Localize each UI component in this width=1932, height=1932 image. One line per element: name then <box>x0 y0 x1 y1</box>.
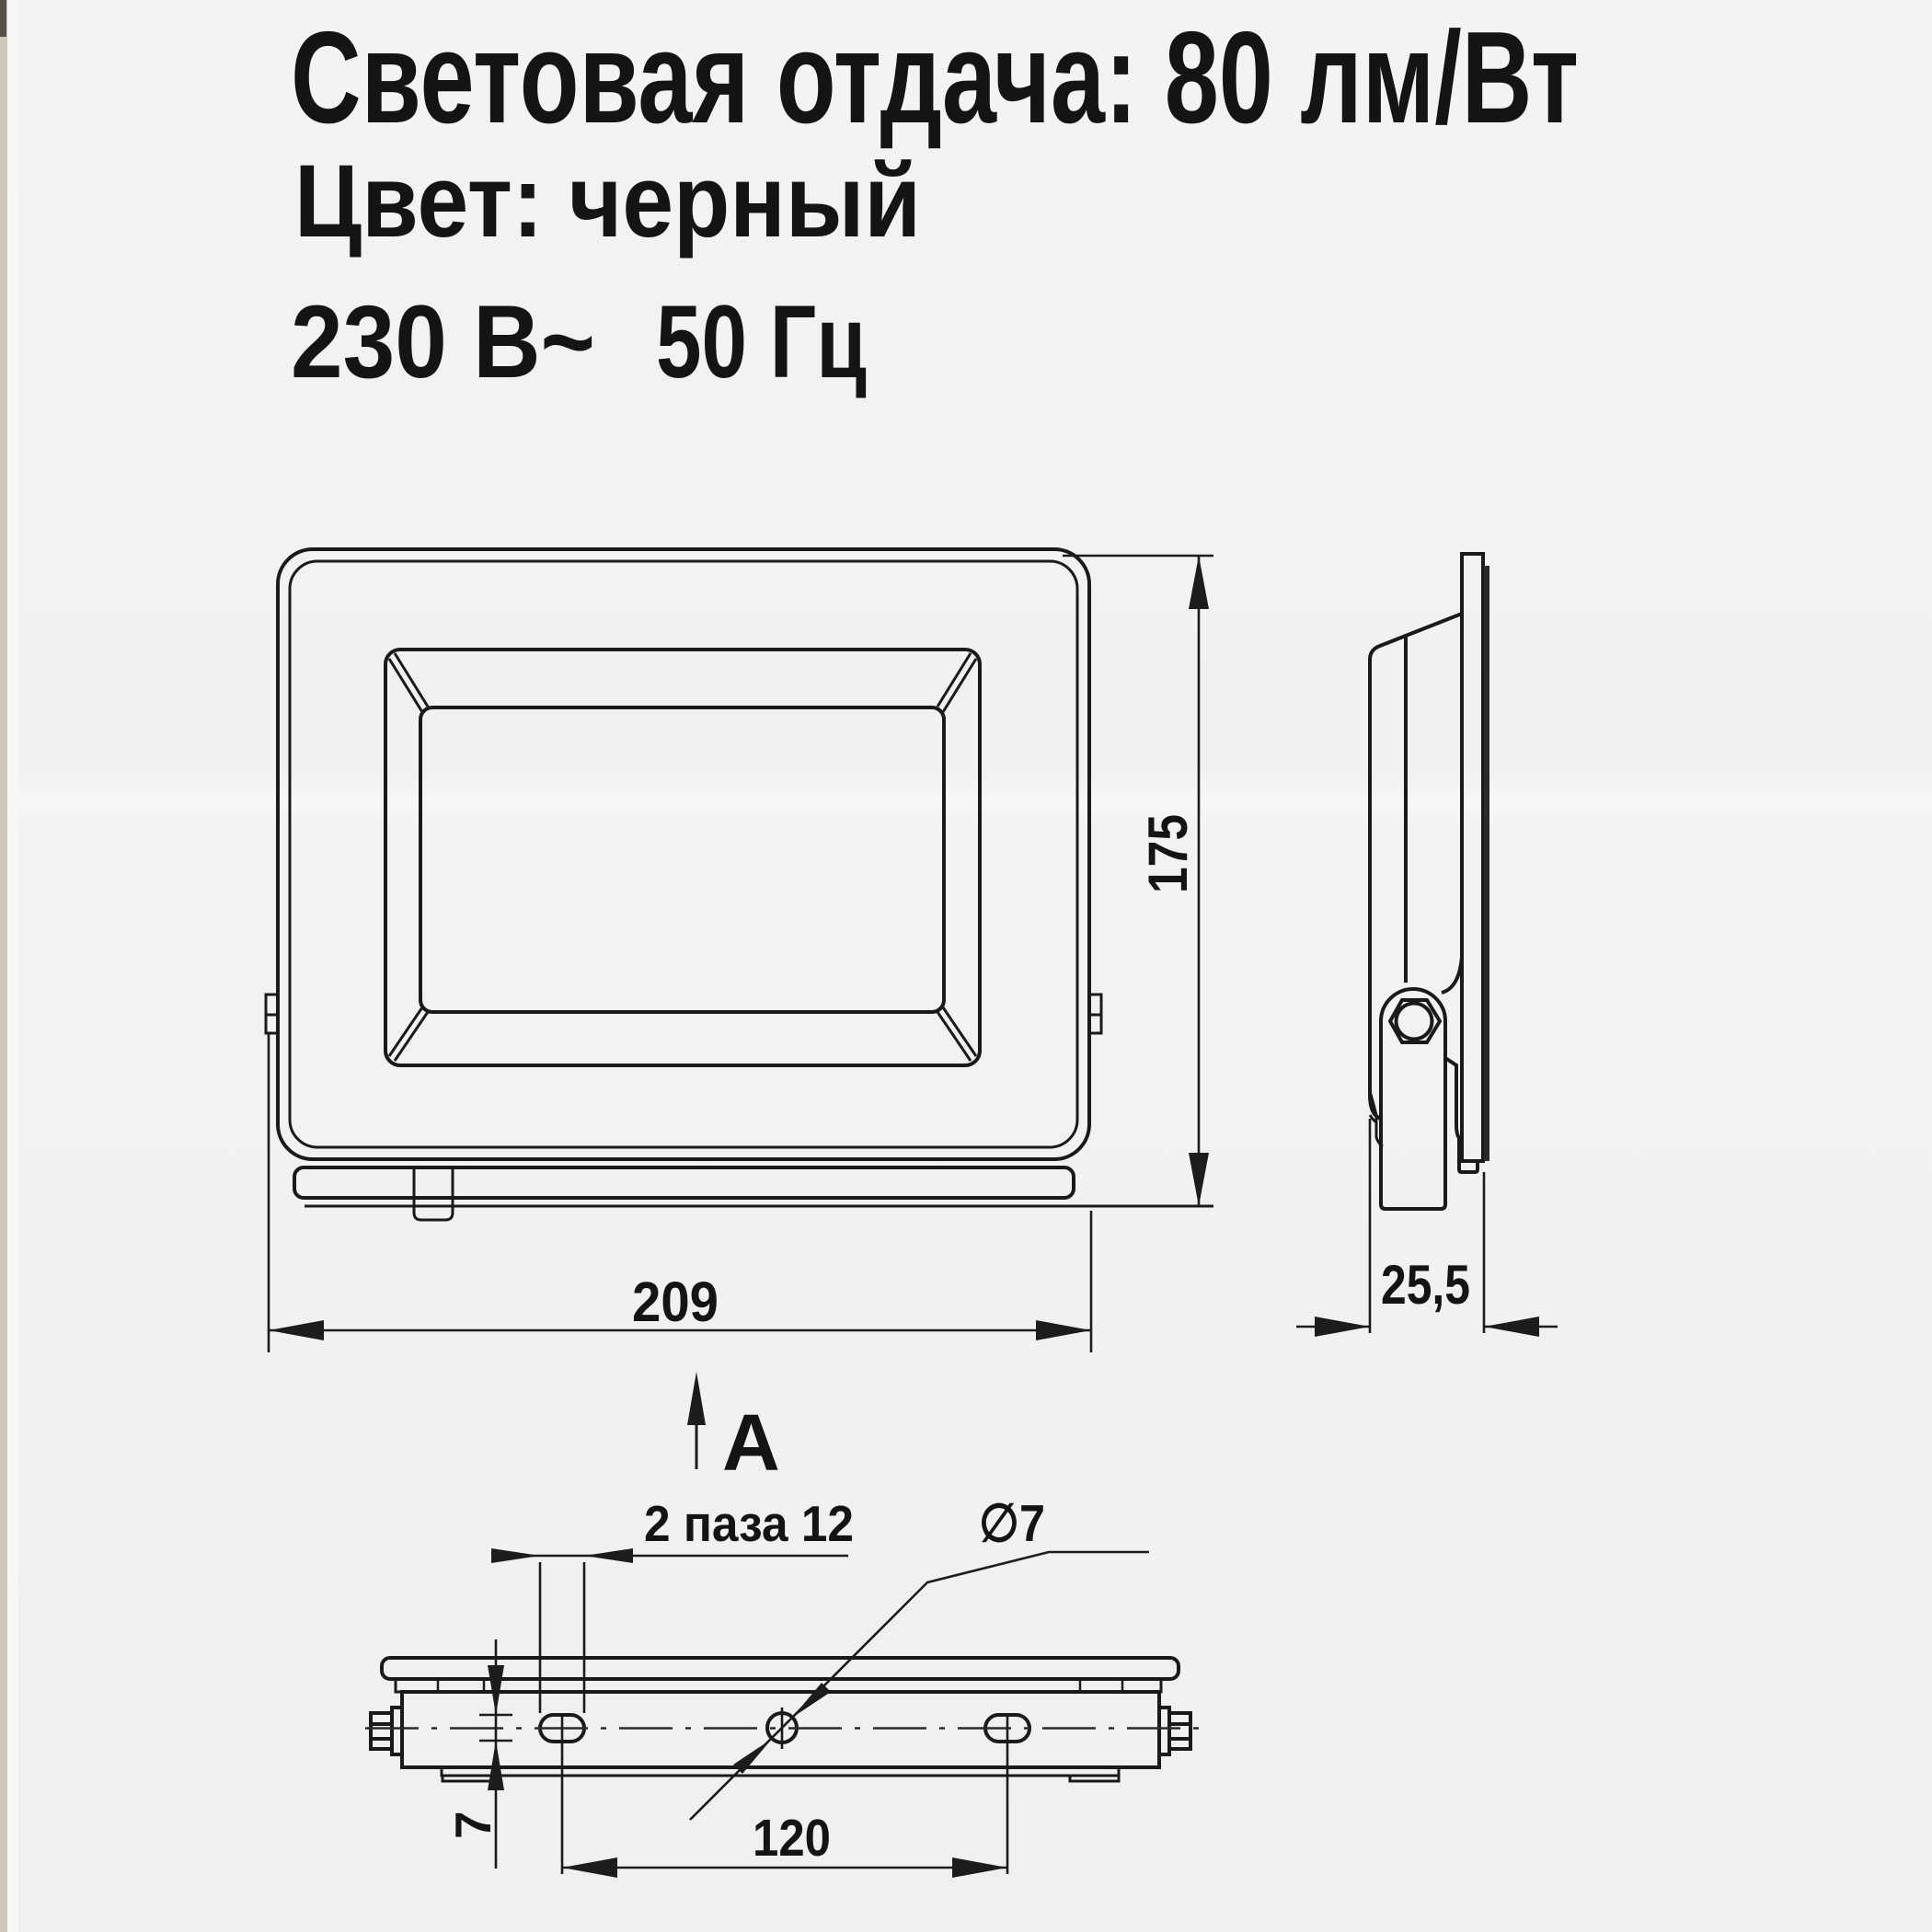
svg-text:230 В~: 230 В~ <box>291 284 595 399</box>
svg-text:50 Гц: 50 Гц <box>656 284 867 399</box>
svg-text:209: 209 <box>632 1271 719 1333</box>
svg-text:Световая отдача: 80 лм/Вт: Световая отдача: 80 лм/Вт <box>291 5 1579 151</box>
svg-text:175: 175 <box>1137 814 1199 893</box>
svg-text:∅7: ∅7 <box>979 1494 1045 1553</box>
svg-text:25,5: 25,5 <box>1381 1254 1470 1316</box>
svg-text:А: А <box>722 1398 780 1488</box>
svg-text:120: 120 <box>753 1809 831 1868</box>
svg-text:Цвет: черный: Цвет: черный <box>294 144 921 259</box>
svg-text:2 паза 12: 2 паза 12 <box>644 1495 854 1552</box>
svg-text:7: 7 <box>444 1811 501 1839</box>
